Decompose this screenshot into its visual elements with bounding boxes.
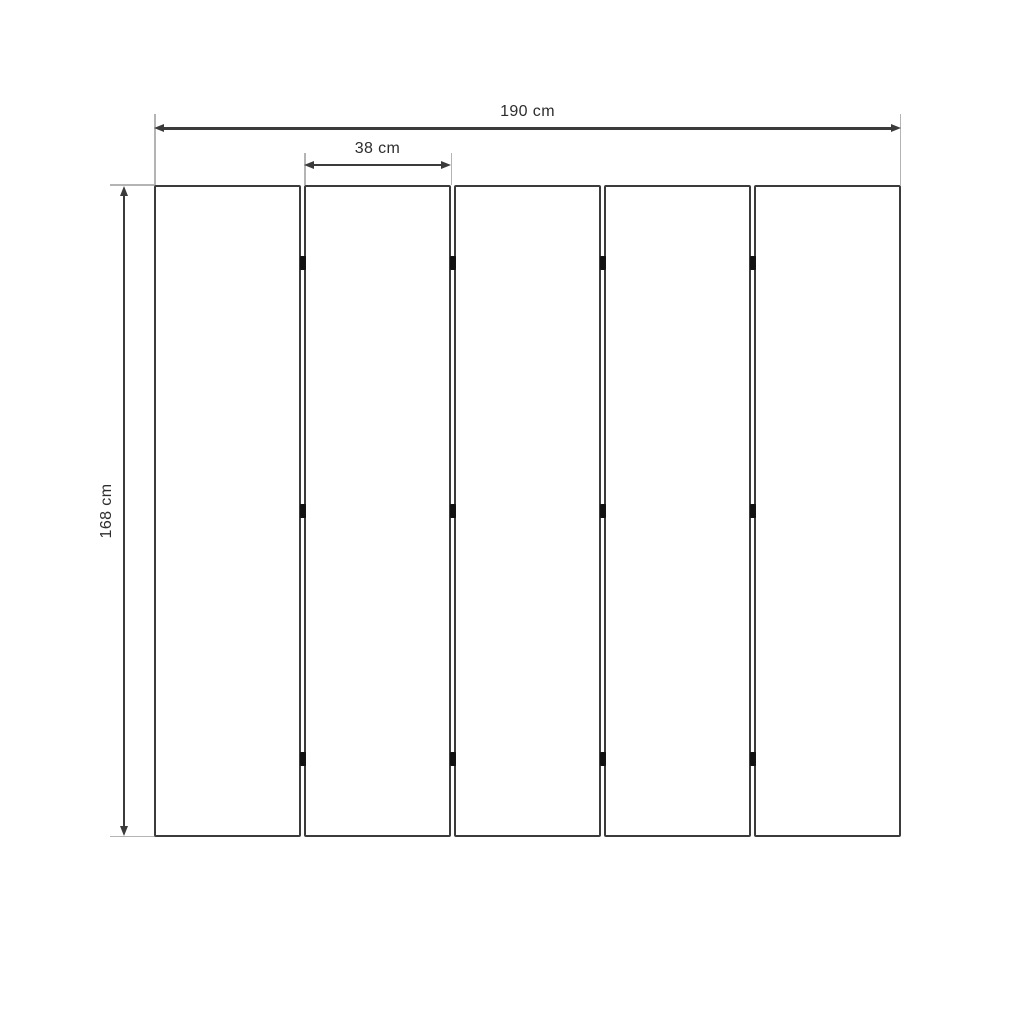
hinge-gap4-row3 (750, 752, 756, 766)
dimension-line (162, 127, 893, 130)
panel-3 (454, 185, 601, 837)
panel-2 (304, 185, 451, 837)
panel-width-label: 38 cm (304, 139, 451, 159)
hinge-gap2-row3 (450, 752, 456, 766)
hinge-gap1-row1 (300, 256, 306, 270)
dimension-line (123, 194, 126, 828)
panel-5 (754, 185, 901, 837)
hinge-gap4-row2 (750, 504, 756, 518)
dimension-drawing: 190 cm 38 cm 168 cm (0, 0, 1024, 1024)
hinge-gap3-row1 (600, 256, 606, 270)
arrowhead-down-icon (120, 826, 128, 836)
extension-line-height-bottom (110, 836, 155, 838)
hinge-gap3-row3 (600, 752, 606, 766)
extension-line-height-top (110, 184, 155, 186)
overall-width-label: 190 cm (154, 102, 901, 122)
panels-row (154, 185, 901, 837)
panel-width-dimension-line (304, 161, 451, 170)
hinge-gap1-row2 (300, 504, 306, 518)
hinge-gap4-row1 (750, 256, 756, 270)
arrowhead-right-icon (891, 124, 901, 132)
panel-4 (604, 185, 751, 837)
hinge-gap2-row2 (450, 504, 456, 518)
hinge-gap1-row3 (300, 752, 306, 766)
panel-1 (154, 185, 301, 837)
height-label: 168 cm (97, 471, 117, 551)
height-dimension-line (120, 186, 129, 836)
overall-width-dimension-line (154, 124, 901, 133)
arrowhead-right-icon (441, 161, 451, 169)
dimension-line (312, 164, 443, 167)
hinge-gap3-row2 (600, 504, 606, 518)
hinge-gap2-row1 (450, 256, 456, 270)
